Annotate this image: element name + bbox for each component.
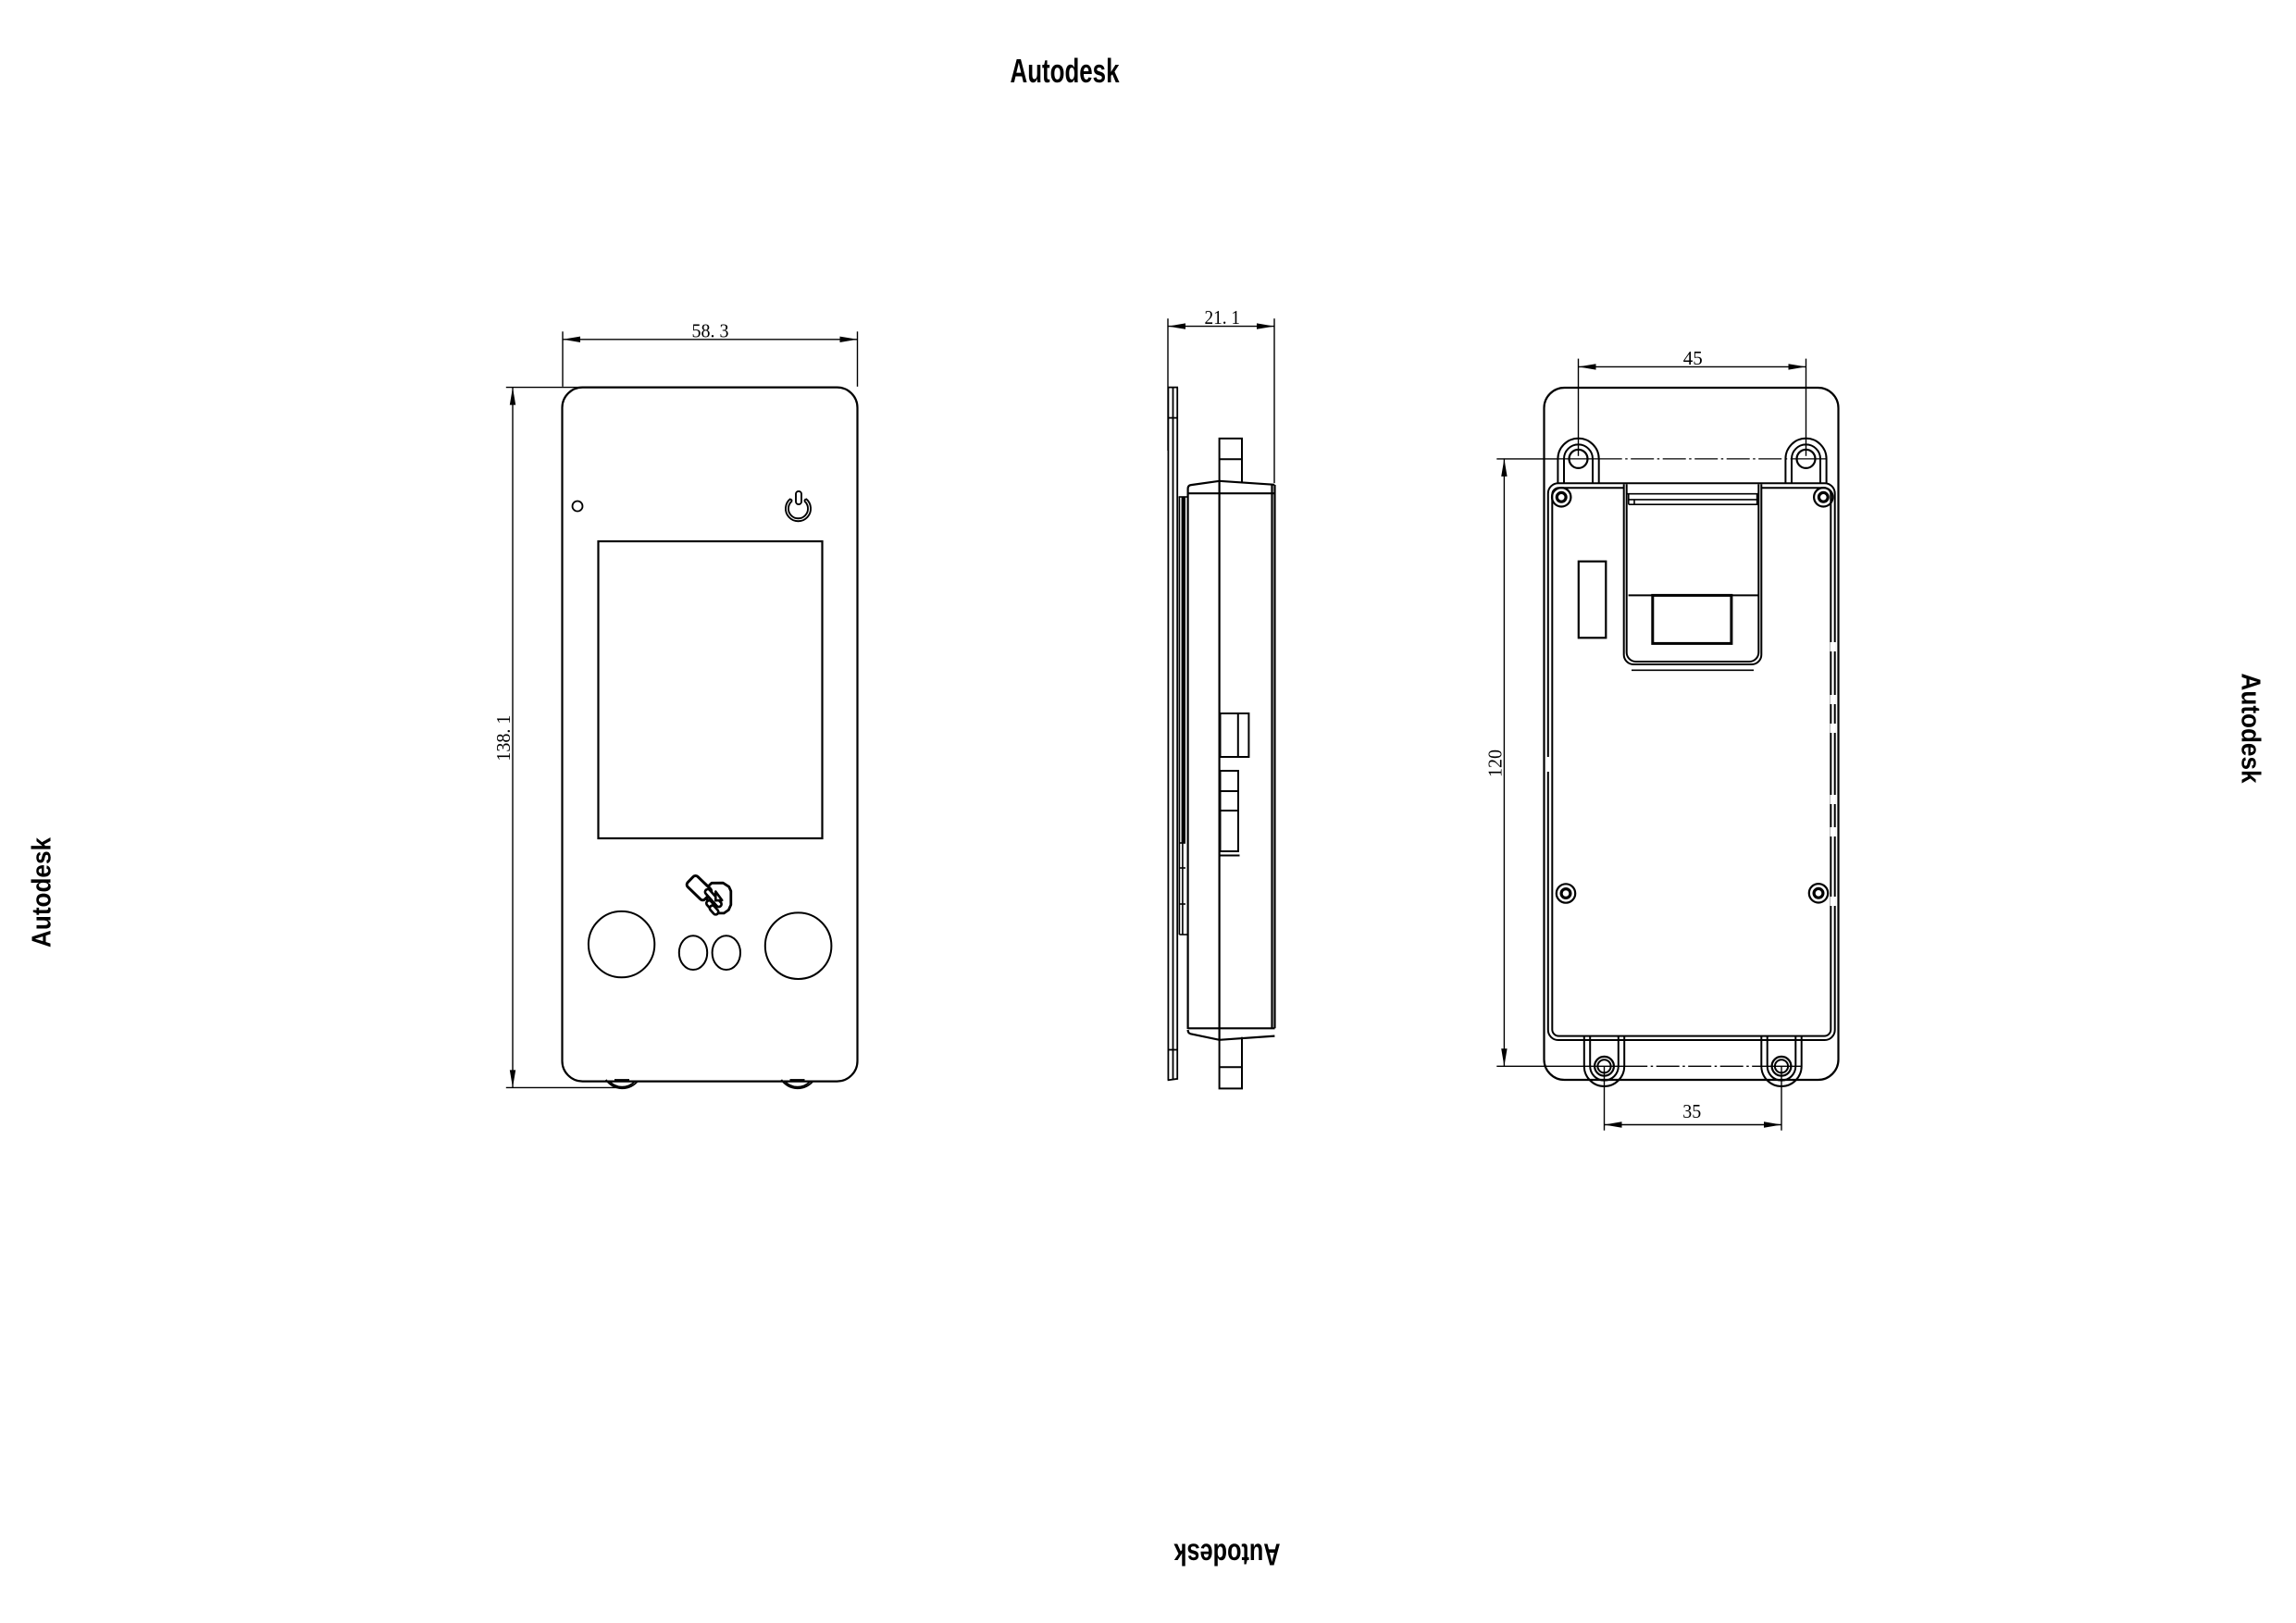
svg-text:Autodesk: Autodesk [1011, 52, 1120, 90]
svg-text:Autodesk: Autodesk [1173, 1536, 1280, 1570]
svg-text:21. 1: 21. 1 [1205, 306, 1241, 328]
svg-text:35: 35 [1682, 1100, 1701, 1122]
svg-text:45: 45 [1683, 347, 1703, 369]
svg-text:120: 120 [1484, 750, 1507, 777]
svg-text:Autodesk: Autodesk [2236, 674, 2265, 785]
svg-text:58. 3: 58. 3 [692, 319, 729, 341]
svg-text:138. 1: 138. 1 [492, 715, 515, 762]
svg-text:Autodesk: Autodesk [27, 836, 56, 948]
